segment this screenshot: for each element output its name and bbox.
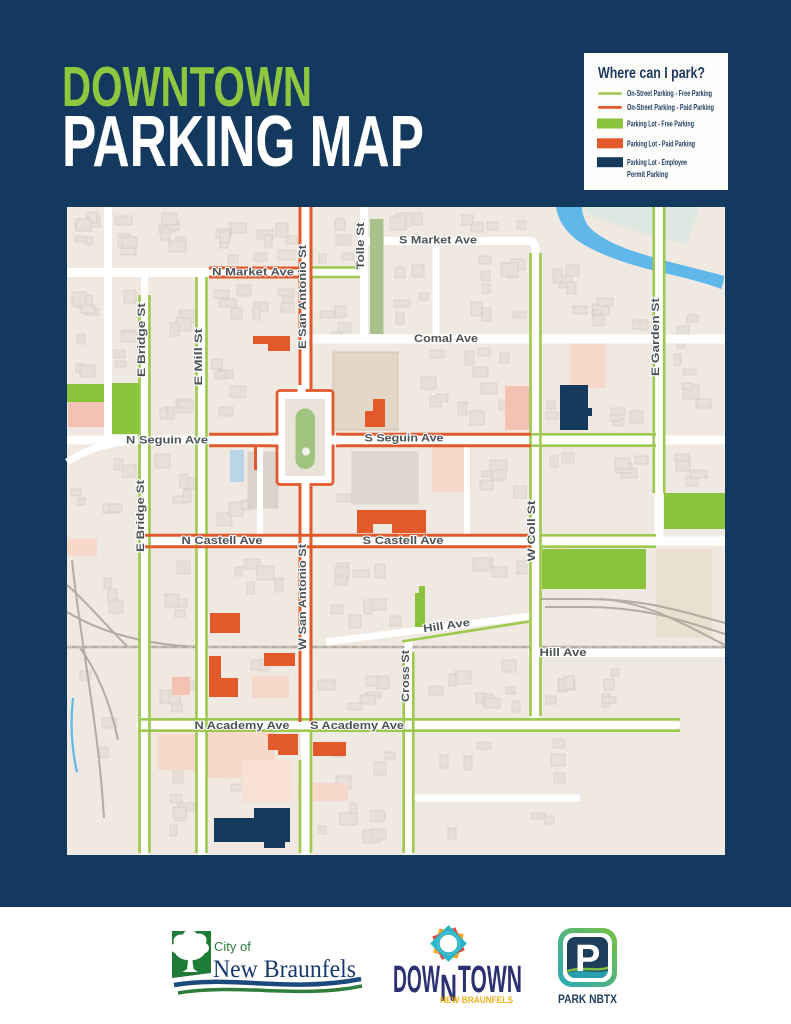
svg-text:Parking Lot - Paid Parking: Parking Lot - Paid Parking [627, 139, 695, 148]
svg-text:On-Street Parking - Free Parki: On-Street Parking - Free Parking [627, 89, 712, 98]
svg-text:On-Street Parking - Paid Parki: On-Street Parking - Paid Parking [627, 103, 714, 112]
svg-text:DOW: DOW [393, 959, 440, 1001]
svg-text:S Castell Ave: S Castell Ave [363, 535, 444, 547]
svg-text:N Academy Ave: N Academy Ave [195, 720, 290, 732]
svg-text:Tolle St: Tolle St [355, 222, 367, 269]
svg-text:S Market Ave: S Market Ave [399, 235, 477, 247]
svg-text:E Bridge St: E Bridge St [135, 480, 147, 552]
svg-text:Hill Ave: Hill Ave [540, 647, 587, 659]
svg-text:S Academy Ave: S Academy Ave [310, 720, 404, 732]
svg-text:New Braunfels: New Braunfels [213, 956, 356, 983]
svg-text:Comal Ave: Comal Ave [414, 333, 478, 345]
svg-text:S Seguin Ave: S Seguin Ave [365, 433, 444, 445]
svg-text:E San Antonio St: E San Antonio St [297, 245, 309, 349]
svg-text:W Coll St: W Coll St [526, 500, 538, 561]
svg-text:E Mill St: E Mill St [193, 328, 205, 385]
svg-text:Where can I park?: Where can I park? [598, 65, 705, 82]
svg-text:N Market Ave: N Market Ave [212, 267, 294, 279]
svg-text:Parking Lot - Employee: Parking Lot - Employee [627, 158, 687, 167]
svg-text:Cross St: Cross St [400, 650, 412, 702]
svg-text:N Seguin Ave: N Seguin Ave [126, 435, 208, 447]
svg-text:E Garden St: E Garden St [650, 298, 662, 376]
svg-text:NEW BRAUNFELS: NEW BRAUNFELS [440, 995, 513, 1005]
svg-text:Permit Parking: Permit Parking [627, 170, 668, 179]
svg-text:N Castell Ave: N Castell Ave [182, 535, 263, 547]
svg-text:W San Antonio St: W San Antonio St [297, 544, 309, 650]
svg-text:E Bridge St: E Bridge St [136, 303, 148, 377]
svg-text:PARK NBTX: PARK NBTX [558, 992, 617, 1006]
svg-text:City of: City of [214, 939, 251, 954]
svg-text:PARKING MAP: PARKING MAP [62, 101, 424, 182]
svg-text:Parking Lot - Free Parking: Parking Lot - Free Parking [627, 119, 694, 128]
svg-text:P: P [575, 938, 600, 980]
